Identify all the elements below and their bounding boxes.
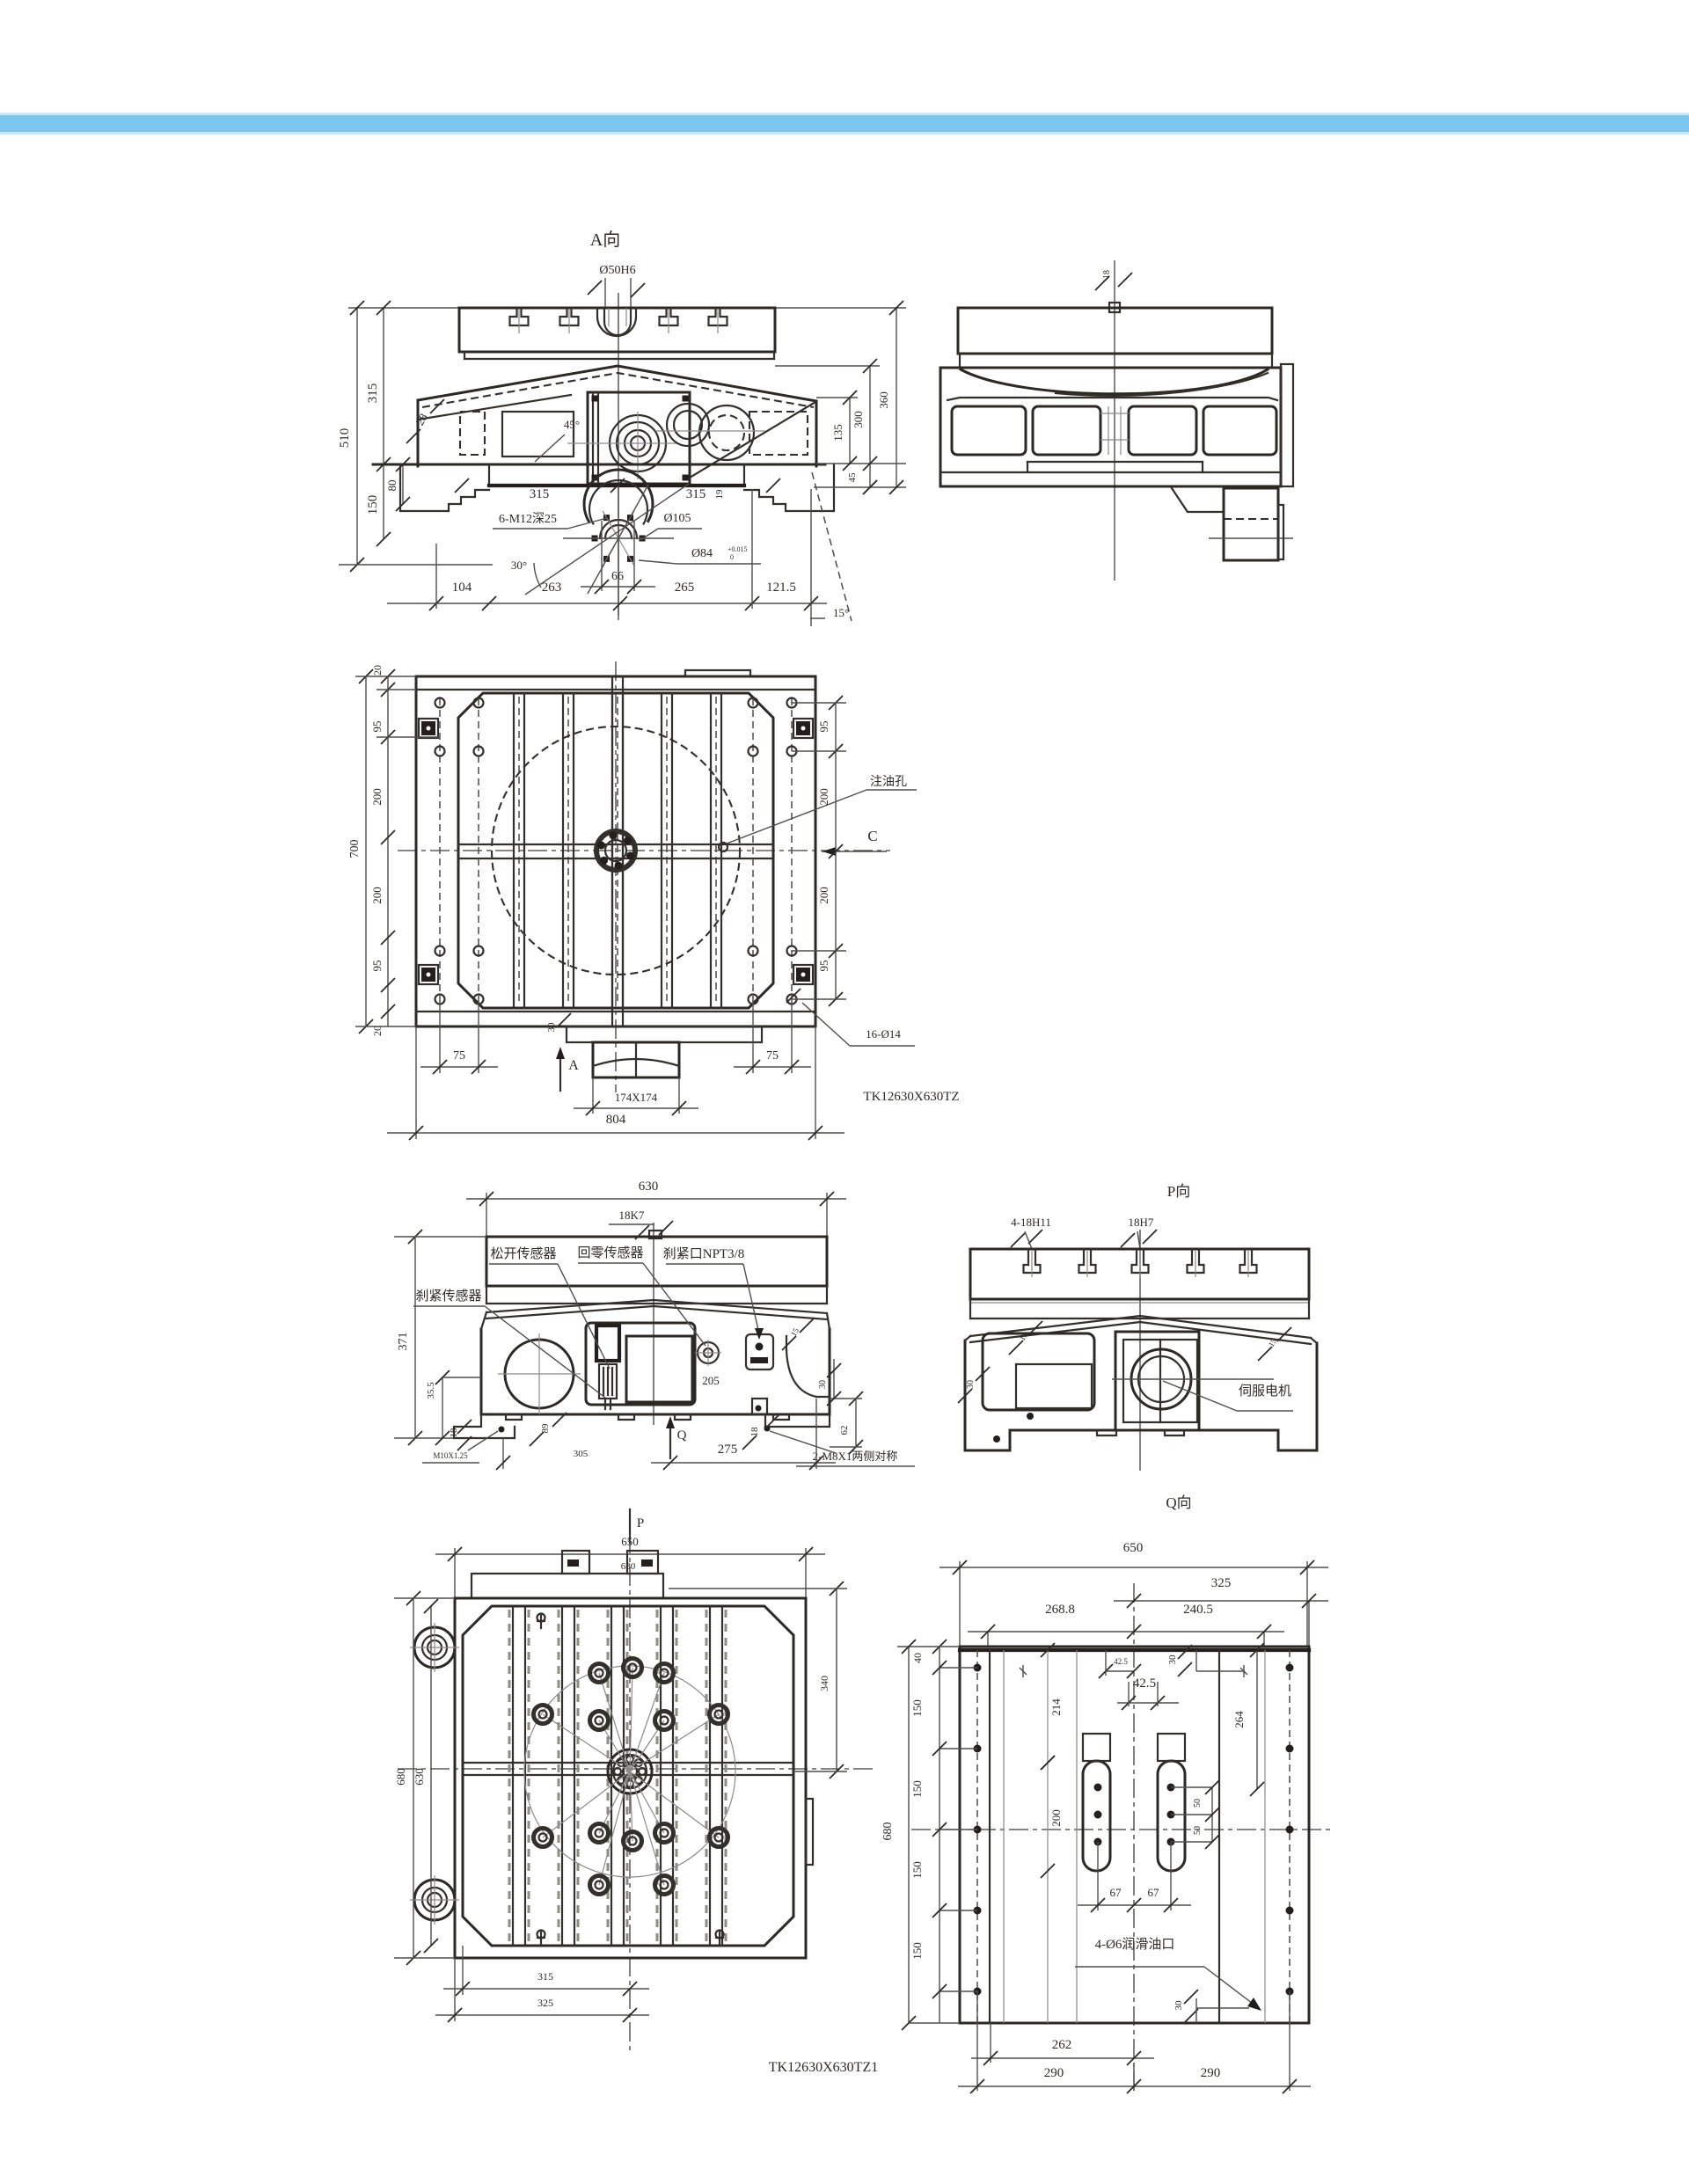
svg-text:95: 95: [817, 721, 830, 733]
svg-text:214: 214: [1049, 1698, 1063, 1716]
svg-text:A向: A向: [590, 230, 620, 250]
svg-text:15°: 15°: [833, 606, 849, 619]
svg-text:240.5: 240.5: [1183, 1603, 1213, 1617]
svg-text:95: 95: [370, 721, 384, 733]
svg-text:Q: Q: [677, 1428, 687, 1443]
svg-text:Ø105: Ø105: [663, 512, 691, 525]
svg-text:200: 200: [817, 887, 830, 904]
svg-text:30: 30: [966, 1380, 976, 1389]
svg-text:30: 30: [1167, 1654, 1178, 1665]
svg-text:200: 200: [817, 788, 830, 806]
svg-text:28: 28: [413, 411, 429, 427]
svg-text:290: 290: [1044, 2066, 1064, 2080]
svg-text:18K7: 18K7: [619, 1209, 645, 1222]
svg-text:650: 650: [621, 1535, 639, 1548]
svg-text:268.8: 268.8: [1045, 1603, 1075, 1617]
svg-text:C: C: [867, 828, 877, 844]
svg-text:510: 510: [338, 428, 352, 449]
svg-text:45: 45: [847, 472, 858, 483]
svg-text:264: 264: [1232, 1711, 1246, 1728]
svg-text:45°: 45°: [564, 418, 580, 431]
svg-text:66: 66: [611, 570, 624, 583]
svg-text:0: 0: [730, 553, 734, 561]
svg-text:35.5: 35.5: [426, 1382, 436, 1399]
svg-text:305: 305: [574, 1449, 589, 1459]
svg-text:P: P: [637, 1516, 644, 1530]
svg-text:A: A: [568, 1058, 579, 1073]
svg-text:M10X1.25: M10X1.25: [433, 1451, 468, 1460]
svg-text:刹紧传感器: 刹紧传感器: [415, 1289, 481, 1304]
svg-text:伺服电机: 伺服电机: [1239, 1384, 1291, 1399]
svg-text:275: 275: [718, 1443, 738, 1457]
svg-text:TK12630X630TZ: TK12630X630TZ: [863, 1090, 959, 1104]
svg-text:135: 135: [831, 424, 844, 442]
svg-text:67: 67: [1110, 1886, 1122, 1899]
svg-text:20: 20: [371, 665, 384, 676]
svg-text:67: 67: [1148, 1886, 1160, 1899]
svg-text:2-M8X1两侧对称: 2-M8X1两侧对称: [813, 1450, 898, 1463]
svg-text:15: 15: [789, 1326, 801, 1338]
svg-text:TK12630X630TZ1: TK12630X630TZ1: [769, 2060, 878, 2075]
svg-text:4-Ø6润滑油口: 4-Ø6润滑油口: [1095, 1937, 1175, 1952]
svg-text:650: 650: [1123, 1541, 1144, 1555]
svg-text:20: 20: [371, 1026, 384, 1036]
svg-text:315: 315: [530, 487, 550, 501]
svg-text:50: 50: [1193, 1799, 1203, 1808]
svg-text:Q向: Q向: [1166, 1494, 1191, 1511]
svg-text:42.5: 42.5: [1114, 1657, 1128, 1666]
svg-text:Ø84: Ø84: [691, 547, 713, 560]
svg-text:50: 50: [1193, 1826, 1203, 1835]
svg-text:95: 95: [370, 961, 384, 972]
svg-text:松开传感器: 松开传感器: [490, 1246, 556, 1261]
svg-text:104: 104: [452, 581, 472, 595]
svg-text:+0.015: +0.015: [728, 545, 748, 553]
svg-text:325: 325: [537, 1997, 553, 2009]
svg-text:62: 62: [839, 1426, 850, 1435]
svg-text:315: 315: [537, 1970, 553, 1983]
svg-text:121.5: 121.5: [766, 581, 796, 595]
svg-text:75: 75: [766, 1049, 779, 1063]
svg-text:315: 315: [686, 487, 706, 501]
svg-text:回零传感器: 回零传感器: [577, 1245, 643, 1260]
svg-text:30: 30: [818, 1380, 828, 1389]
svg-text:680: 680: [394, 1768, 407, 1786]
svg-text:150: 150: [366, 495, 380, 515]
svg-text:刹紧口NPT3/8: 刹紧口NPT3/8: [663, 1246, 745, 1261]
svg-text:315: 315: [366, 383, 380, 404]
svg-text:360: 360: [877, 391, 890, 409]
svg-text:30°: 30°: [511, 559, 527, 572]
svg-text:18: 18: [749, 1427, 760, 1437]
svg-text:340: 340: [818, 1676, 830, 1691]
svg-text:630: 630: [639, 1180, 659, 1194]
svg-text:95: 95: [817, 961, 830, 972]
svg-text:680: 680: [881, 1822, 895, 1841]
svg-text:30: 30: [546, 1022, 557, 1033]
svg-text:205: 205: [702, 1374, 720, 1387]
svg-text:150: 150: [910, 1942, 924, 1960]
svg-text:6-M12深25: 6-M12深25: [499, 512, 557, 526]
svg-text:89: 89: [540, 1423, 551, 1434]
svg-text:75: 75: [453, 1049, 465, 1063]
svg-text:300: 300: [852, 411, 865, 428]
svg-text:200: 200: [370, 788, 384, 806]
svg-text:18H7: 18H7: [1129, 1216, 1154, 1229]
svg-text:150: 150: [910, 1780, 924, 1798]
svg-text:16-Ø14: 16-Ø14: [866, 1027, 901, 1041]
svg-text:325: 325: [1211, 1576, 1232, 1590]
svg-text:150: 150: [910, 1861, 924, 1879]
svg-text:700: 700: [348, 840, 362, 858]
svg-text:200: 200: [370, 887, 384, 904]
svg-text:262: 262: [1052, 2038, 1072, 2052]
svg-text:263: 263: [542, 581, 562, 595]
svg-text:P向: P向: [1167, 1183, 1190, 1200]
svg-text:630: 630: [621, 1561, 636, 1572]
svg-text:371: 371: [397, 1333, 410, 1351]
svg-text:注油孔: 注油孔: [870, 775, 907, 789]
svg-text:174X174: 174X174: [615, 1091, 658, 1104]
svg-text:19: 19: [714, 489, 725, 500]
svg-text:150: 150: [910, 1699, 924, 1717]
svg-text:4-18H11: 4-18H11: [1011, 1216, 1051, 1229]
svg-text:200: 200: [1049, 1809, 1063, 1827]
svg-text:804: 804: [606, 1113, 626, 1127]
svg-text:290: 290: [1201, 2066, 1221, 2080]
svg-text:265: 265: [675, 581, 695, 595]
svg-text:30: 30: [1174, 2000, 1184, 2011]
svg-text:42.5: 42.5: [1133, 1676, 1156, 1691]
svg-text:80: 80: [385, 480, 398, 492]
svg-text:630: 630: [413, 1768, 426, 1786]
svg-text:40: 40: [911, 1653, 924, 1663]
svg-text:Ø50H6: Ø50H6: [599, 264, 635, 277]
